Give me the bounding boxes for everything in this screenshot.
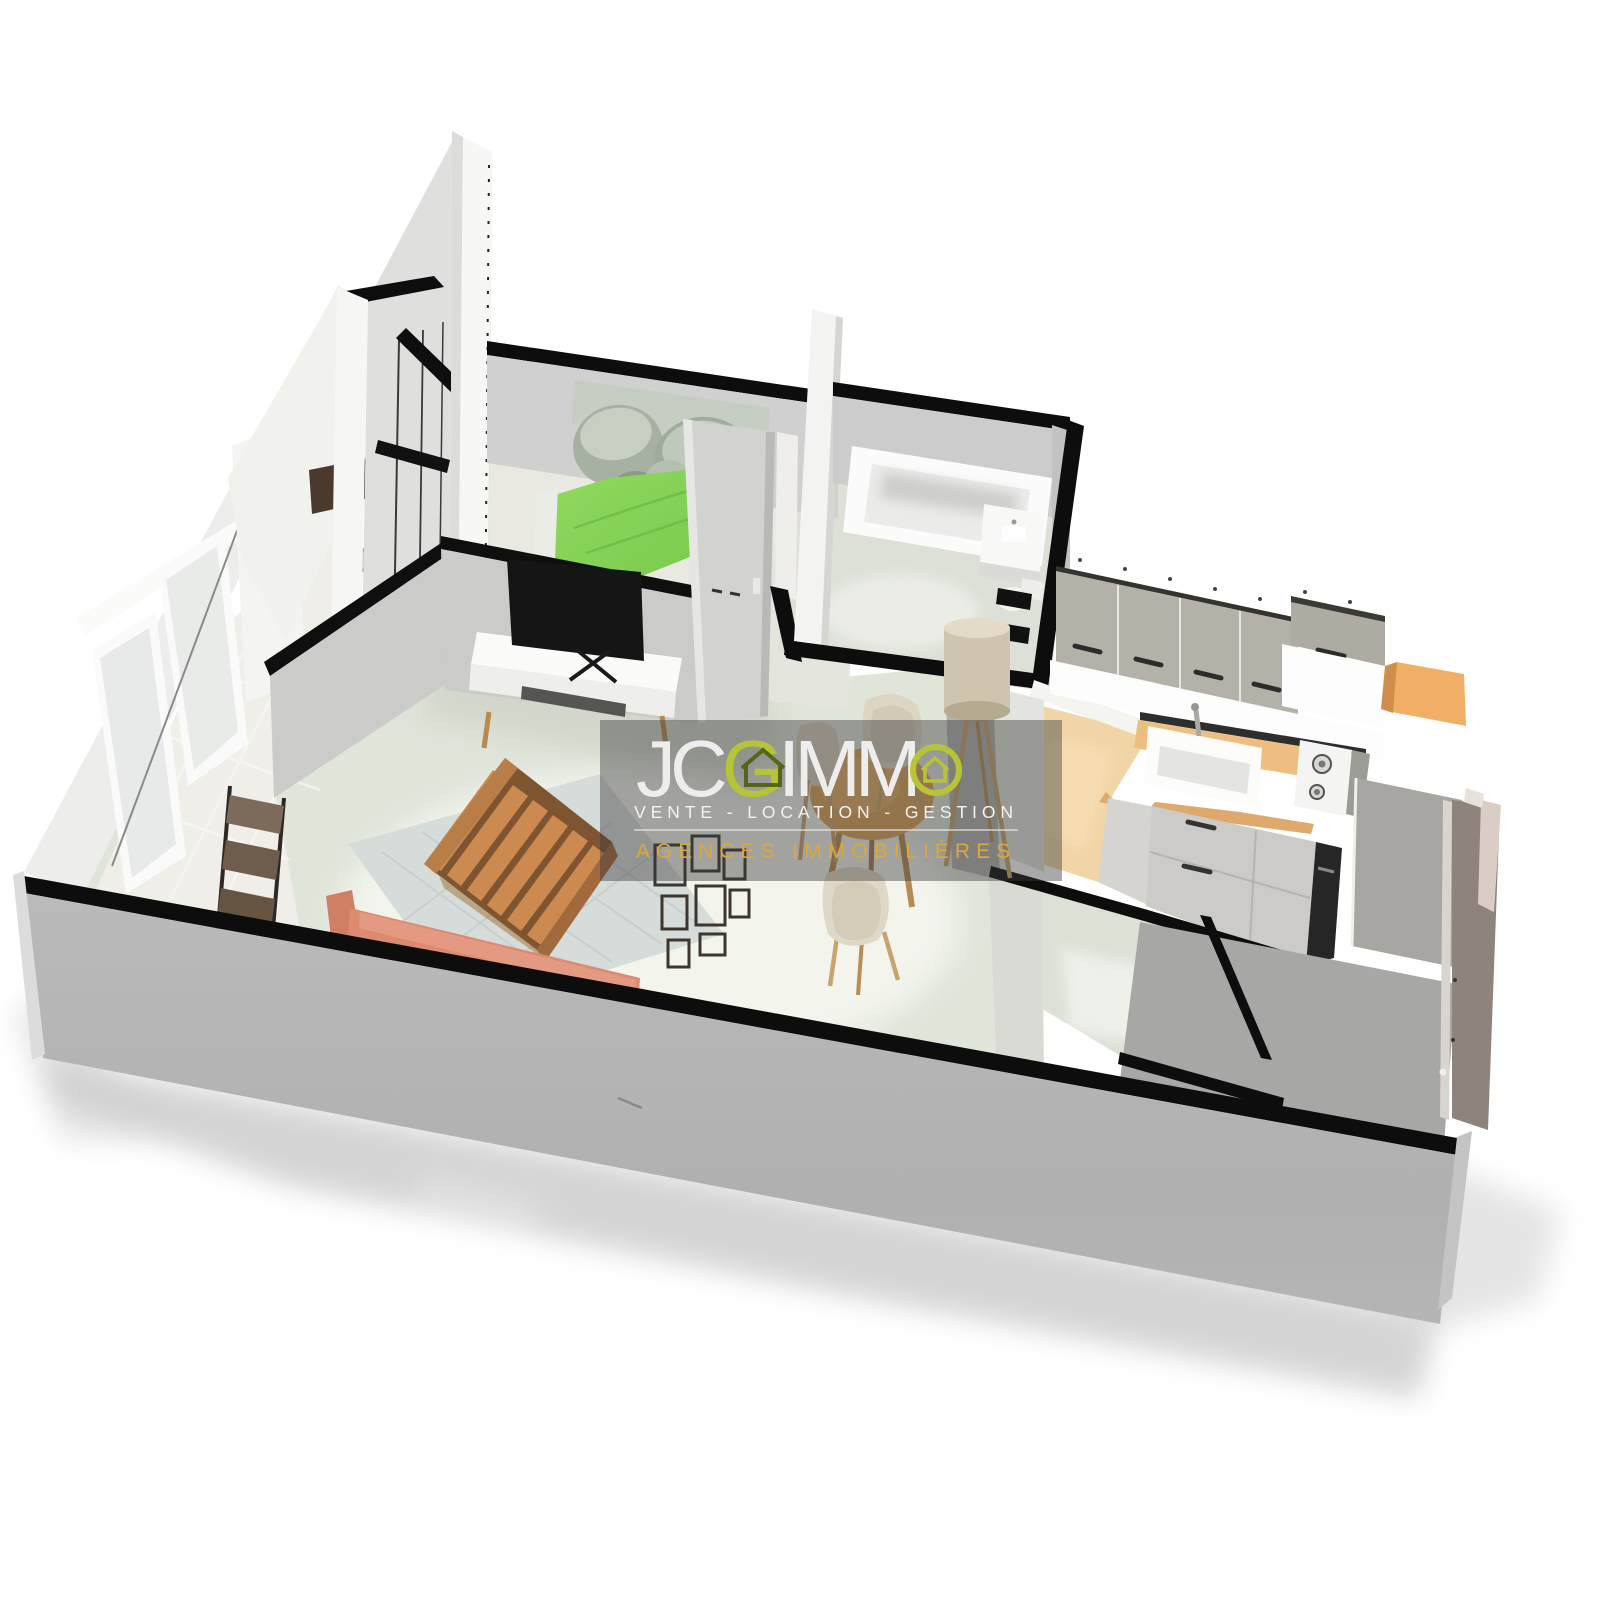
svg-text:VENTE - LOCATION - GESTION: VENTE - LOCATION - GESTION — [634, 802, 1018, 822]
svg-text:AGENCES IMMOBILIÈRES: AGENCES IMMOBILIÈRES — [636, 840, 1016, 863]
svg-text:JCGIMM: JCGIMM — [636, 724, 916, 813]
